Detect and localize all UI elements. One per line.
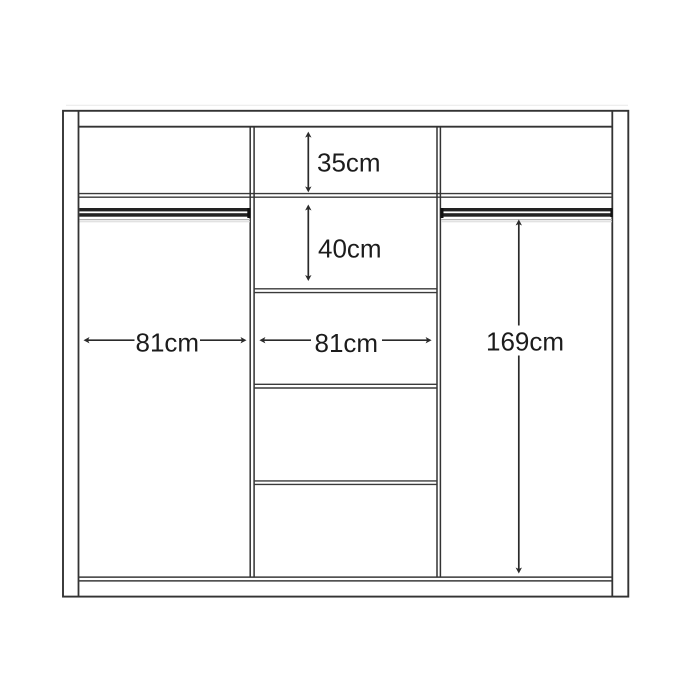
svg-text:81cm: 81cm — [315, 328, 379, 358]
svg-text:81cm: 81cm — [136, 328, 200, 358]
svg-text:35cm: 35cm — [317, 148, 381, 178]
svg-text:40cm: 40cm — [318, 234, 382, 264]
svg-text:169cm: 169cm — [486, 327, 564, 357]
